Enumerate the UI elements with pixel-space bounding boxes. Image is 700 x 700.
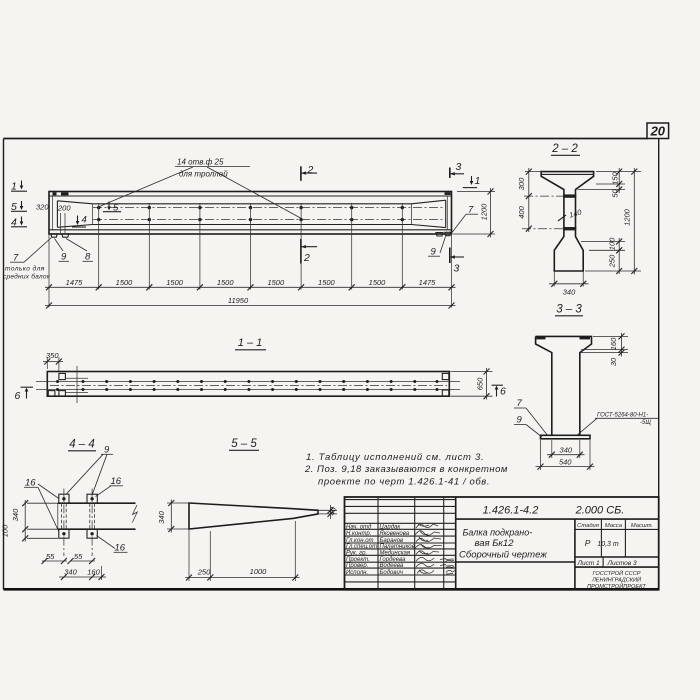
svg-text:Палатников: Палатников <box>380 544 415 550</box>
svg-text:Масшт.: Масшт. <box>631 523 653 529</box>
svg-text:160: 160 <box>609 337 618 350</box>
svg-text:Н.контр.: Н.контр. <box>346 531 371 537</box>
svg-text:ГОССТРОЙ СССР: ГОССТРОЙ СССР <box>592 569 640 577</box>
svg-text:Исполн.: Исполн. <box>346 570 368 576</box>
svg-text:ЛЕНИНГРАДСКИЙ: ЛЕНИНГРАДСКИЙ <box>591 576 641 584</box>
svg-text:150: 150 <box>611 171 620 184</box>
svg-text:1.426.1-4.2: 1.426.1-4.2 <box>483 505 539 517</box>
svg-text:300: 300 <box>517 177 526 190</box>
svg-text:Яковенова: Яковенова <box>379 531 410 537</box>
svg-text:20: 20 <box>650 124 666 139</box>
svg-text:Гл.спец.от: Гл.спец.от <box>346 544 377 550</box>
svg-text:100: 100 <box>1 524 10 537</box>
svg-text:16: 16 <box>25 478 36 489</box>
svg-text:6: 6 <box>500 386 506 398</box>
svg-text:3: 3 <box>454 263 460 275</box>
svg-text:1000: 1000 <box>250 567 268 576</box>
svg-text:1500: 1500 <box>116 278 134 287</box>
svg-text:1500: 1500 <box>166 278 184 287</box>
svg-text:1475: 1475 <box>419 278 437 287</box>
svg-text:средних балок: средних балок <box>3 273 51 281</box>
svg-text:340: 340 <box>563 288 576 297</box>
svg-text:Цардак: Цардак <box>380 525 402 531</box>
svg-text:200: 200 <box>57 204 71 213</box>
svg-text:3: 3 <box>456 161 462 173</box>
svg-text:1: 1 <box>475 175 481 187</box>
svg-text:2.000 СБ.: 2.000 СБ. <box>575 505 625 517</box>
svg-text:Р: Р <box>585 538 591 548</box>
svg-text:9: 9 <box>517 415 523 426</box>
svg-text:540: 540 <box>559 458 572 467</box>
svg-text:7: 7 <box>517 398 523 409</box>
svg-text:1 – 1: 1 – 1 <box>238 337 262 349</box>
svg-text:9: 9 <box>61 252 67 263</box>
svg-text:4 – 4: 4 – 4 <box>69 439 95 451</box>
svg-text:14 отв.ф 25: 14 отв.ф 25 <box>177 158 224 167</box>
svg-text:250: 250 <box>197 568 211 577</box>
svg-text:Водеева: Водеева <box>380 563 404 569</box>
svg-text:400: 400 <box>517 205 526 218</box>
svg-text:ГОСТ-5264-80-Н1-: ГОСТ-5264-80-Н1- <box>597 413 648 419</box>
svg-text:1500: 1500 <box>267 278 285 287</box>
svg-text:для троллей: для троллей <box>179 170 228 179</box>
svg-text:350: 350 <box>46 351 59 360</box>
svg-text:250: 250 <box>608 254 617 268</box>
svg-text:4: 4 <box>82 215 87 226</box>
svg-text:340: 340 <box>64 568 77 577</box>
svg-text:Листов 3: Листов 3 <box>607 560 637 567</box>
svg-text:Балка подкрано-: Балка подкрано- <box>463 528 533 538</box>
svg-text:340: 340 <box>157 510 166 523</box>
svg-text:2: 2 <box>307 164 314 176</box>
svg-text:16: 16 <box>115 543 126 554</box>
svg-text:1475: 1475 <box>66 278 84 287</box>
svg-text:160: 160 <box>87 568 100 577</box>
svg-text:1500: 1500 <box>369 278 387 287</box>
svg-text:проекте по черт 1.426.1-41 / о: проекте по черт 1.426.1-41 / обв. <box>318 477 490 488</box>
svg-text:30: 30 <box>609 357 618 366</box>
svg-text:Бодович: Бодович <box>380 570 403 576</box>
svg-text:Масса: Масса <box>605 523 623 529</box>
svg-text:Рук. гр.: Рук. гр. <box>346 550 367 556</box>
svg-text:16: 16 <box>111 476 122 487</box>
svg-text:Лист 1: Лист 1 <box>577 560 601 567</box>
svg-text:Провер.: Провер. <box>346 563 368 569</box>
svg-text:5 – 5: 5 – 5 <box>231 438 257 450</box>
svg-text:100: 100 <box>608 237 617 250</box>
svg-text:2 – 2: 2 – 2 <box>551 143 578 155</box>
svg-text:2. Поз. 9,18 заказываются в ко: 2. Поз. 9,18 заказываются в конкретном <box>304 464 508 475</box>
svg-text:320: 320 <box>36 203 49 212</box>
svg-text:1500: 1500 <box>217 278 235 287</box>
svg-text:Нач. отд: Нач. отд <box>346 525 372 531</box>
svg-text:Сборочный чертеж: Сборочный чертеж <box>459 550 547 561</box>
svg-text:10,3 т: 10,3 т <box>597 541 619 548</box>
svg-text:Мединская: Мединская <box>380 550 411 556</box>
svg-text:ПРОМСТРОЙПРОЕКТ: ПРОМСТРОЙПРОЕКТ <box>587 582 646 590</box>
svg-text:11950: 11950 <box>228 296 249 305</box>
svg-text:2: 2 <box>303 252 310 264</box>
svg-text:1200: 1200 <box>623 208 632 226</box>
svg-text:1200: 1200 <box>480 203 489 221</box>
svg-text:650: 650 <box>476 377 485 390</box>
svg-text:55: 55 <box>46 552 55 561</box>
svg-text:-5Щ: -5Щ <box>640 420 651 426</box>
svg-text:340: 340 <box>560 446 573 455</box>
svg-text:340: 340 <box>11 508 20 521</box>
svg-text:1. Таблицу исполнений см. лис: 1. Таблицу исполнений см. лист 3. <box>306 452 484 463</box>
svg-text:8: 8 <box>85 252 91 263</box>
svg-text:6: 6 <box>15 390 21 402</box>
svg-text:50: 50 <box>611 189 620 198</box>
svg-text:1500: 1500 <box>318 278 336 287</box>
svg-text:Стадия: Стадия <box>577 523 599 529</box>
svg-text:9: 9 <box>104 445 110 456</box>
svg-text:вая Бк12: вая Бк12 <box>475 538 515 549</box>
svg-text:55: 55 <box>74 552 83 561</box>
svg-text:3 – 3: 3 – 3 <box>556 304 582 316</box>
svg-text:только для: только для <box>5 265 45 273</box>
